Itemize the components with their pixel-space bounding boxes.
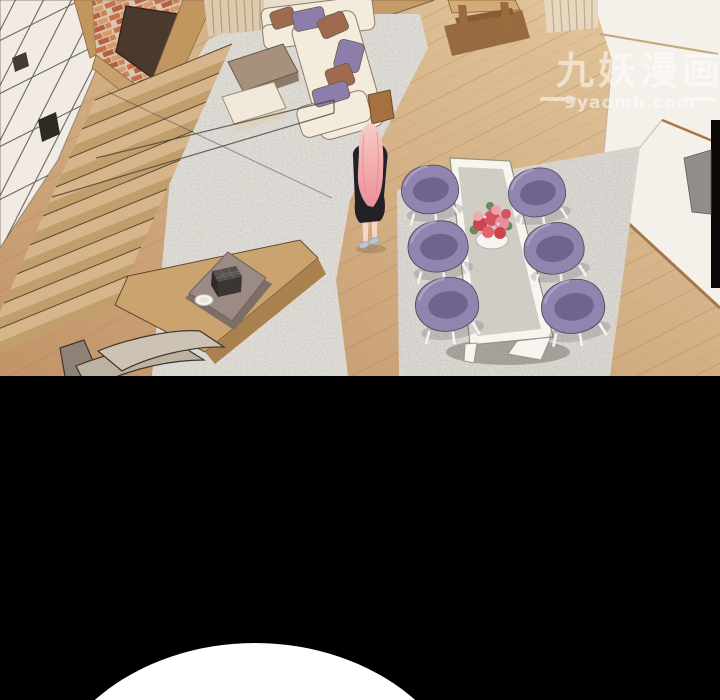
side-stool xyxy=(368,90,394,124)
dark-doorway xyxy=(711,120,720,288)
louver-panel xyxy=(544,0,598,33)
watermark: 九妖漫画 9yaomh.com xyxy=(540,49,720,113)
letterbox-bottom xyxy=(0,376,720,700)
watermark-title: 九妖漫画 xyxy=(556,49,720,93)
room-illustration: 九妖漫画 9yaomh.com xyxy=(0,0,720,700)
slat-wall xyxy=(204,0,264,36)
comic-panel: 九妖漫画 9yaomh.com xyxy=(0,0,720,700)
watermark-site: 9yaomh.com xyxy=(564,93,696,113)
pink-hair xyxy=(358,123,383,207)
